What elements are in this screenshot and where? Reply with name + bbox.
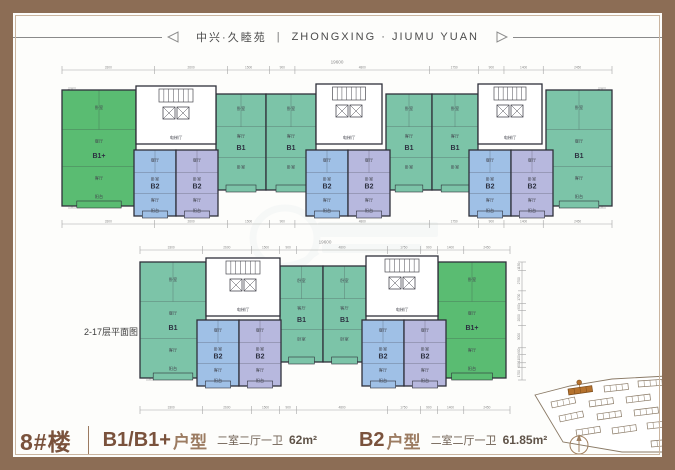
svg-text:600: 600 — [517, 362, 521, 368]
svg-text:卧室: 卧室 — [287, 163, 295, 170]
svg-text:900: 900 — [489, 220, 495, 224]
unit-b1-desc: 二室二厅一卫 — [217, 432, 283, 448]
svg-text:电梯厅: 电梯厅 — [396, 306, 409, 313]
unit-b1+: 卧室餐厅客厅阳台B1+ — [62, 90, 136, 208]
svg-text:4800: 4800 — [359, 220, 366, 224]
svg-text:阳台: 阳台 — [379, 377, 387, 384]
svg-text:900: 900 — [517, 304, 521, 310]
svg-text:1750: 1750 — [400, 246, 407, 250]
left-arrow-icon — [167, 31, 179, 43]
svg-text:3300: 3300 — [105, 66, 112, 70]
stair-elevator-core: 电梯厅 — [206, 258, 280, 316]
site-building — [638, 379, 662, 387]
svg-text:900: 900 — [489, 66, 495, 70]
svg-text:卧室: 卧室 — [256, 346, 264, 353]
svg-text:B2: B2 — [323, 184, 332, 191]
svg-text:B2: B2 — [193, 184, 202, 191]
svg-text:B2: B2 — [421, 354, 430, 361]
svg-text:2450: 2450 — [574, 66, 581, 70]
svg-text:卧室: 卧室 — [237, 163, 245, 170]
svg-text:阳台: 阳台 — [575, 193, 583, 200]
svg-text:餐厅: 餐厅 — [256, 326, 264, 333]
svg-text:1500: 1500 — [245, 220, 252, 224]
svg-text:餐厅: 餐厅 — [528, 156, 536, 163]
svg-text:阳台: 阳台 — [421, 377, 429, 384]
svg-text:B1: B1 — [297, 317, 306, 324]
svg-text:B2: B2 — [379, 354, 388, 361]
svg-text:卧室: 卧室 — [340, 277, 348, 284]
svg-text:客厅: 客厅 — [575, 175, 583, 182]
svg-text:阳台: 阳台 — [468, 365, 476, 372]
svg-text:客厅: 客厅 — [151, 197, 159, 204]
svg-text:卧室: 卧室 — [451, 163, 459, 170]
svg-text:电梯厅: 电梯厅 — [170, 134, 183, 141]
svg-text:1750: 1750 — [451, 66, 458, 70]
svg-text:餐厅: 餐厅 — [95, 138, 103, 145]
svg-text:餐厅: 餐厅 — [214, 326, 222, 333]
svg-text:1150: 1150 — [517, 263, 521, 270]
svg-text:900: 900 — [286, 406, 292, 410]
header-right-line — [513, 37, 675, 38]
svg-text:卧室: 卧室 — [365, 176, 373, 183]
svg-text:卧室: 卧室 — [151, 176, 159, 183]
svg-text:卧室: 卧室 — [405, 105, 413, 112]
svg-text:卧室: 卧室 — [405, 163, 413, 170]
svg-text:1400: 1400 — [520, 220, 527, 224]
project-title: 中兴·久睦苑 | ZHONGXING · JIUMU YUAN — [184, 29, 491, 45]
svg-text:19600: 19600 — [331, 60, 344, 65]
project-title-en: ZHONGXING · JIUMU YUAN — [292, 31, 479, 43]
svg-text:卧室: 卧室 — [297, 277, 305, 284]
svg-text:阳台: 阳台 — [151, 207, 159, 214]
svg-text:卧室: 卧室 — [214, 346, 222, 353]
header-left-line — [0, 37, 162, 38]
svg-text:餐厅: 餐厅 — [193, 156, 201, 163]
stair-elevator-core: 电梯厅 — [316, 84, 382, 144]
title-separator: | — [277, 31, 282, 43]
svg-text:B2: B2 — [214, 354, 223, 361]
svg-text:阳台: 阳台 — [95, 193, 103, 200]
svg-text:客厅: 客厅 — [193, 197, 201, 204]
svg-text:客厅: 客厅 — [237, 133, 245, 140]
svg-text:客厅: 客厅 — [365, 197, 373, 204]
svg-text:餐厅: 餐厅 — [468, 310, 476, 317]
svg-text:900: 900 — [280, 220, 286, 224]
svg-text:阳台: 阳台 — [365, 207, 373, 214]
svg-text:B1: B1 — [340, 317, 349, 324]
svg-text:900: 900 — [426, 406, 432, 410]
svg-text:2600: 2600 — [188, 220, 195, 224]
svg-text:餐厅: 餐厅 — [323, 156, 331, 163]
svg-text:阳台: 阳台 — [193, 207, 201, 214]
unit-b2: 餐厅卧室客厅阳台B2 — [306, 150, 348, 218]
building-number-label: 8#楼 — [20, 423, 72, 457]
svg-text:卧室: 卧室 — [528, 176, 536, 183]
svg-text:卧室: 卧室 — [340, 335, 348, 342]
svg-text:客厅: 客厅 — [468, 347, 476, 354]
unit-b1: 卧室客厅卧室B1 — [216, 94, 266, 192]
svg-text:卧室: 卧室 — [575, 104, 583, 111]
svg-text:卧室: 卧室 — [169, 276, 177, 283]
svg-text:4800: 4800 — [338, 246, 345, 250]
svg-text:阳台: 阳台 — [486, 207, 494, 214]
svg-text:卧室: 卧室 — [486, 176, 494, 183]
svg-text:B1: B1 — [405, 145, 414, 152]
floor-range-note: 2-17层平面图 — [84, 325, 138, 338]
svg-text:2450: 2450 — [483, 246, 490, 250]
svg-text:客厅: 客厅 — [405, 133, 413, 140]
svg-text:B1: B1 — [451, 145, 460, 152]
svg-text:客厅: 客厅 — [297, 305, 305, 312]
svg-text:1400: 1400 — [520, 66, 527, 70]
svg-text:客厅: 客厅 — [379, 367, 387, 374]
svg-text:客厅: 客厅 — [421, 367, 429, 374]
svg-text:餐厅: 餐厅 — [379, 326, 387, 333]
unit-b2-suffix: 户型 — [387, 428, 421, 453]
svg-text:卧室: 卧室 — [95, 104, 103, 111]
svg-text:餐厅: 餐厅 — [421, 326, 429, 333]
svg-text:卧室: 卧室 — [323, 176, 331, 183]
unit-b2: 餐厅卧室客厅阳台B2 — [348, 150, 390, 218]
unit-b2: 餐厅卧室客厅阳台B2 — [197, 320, 239, 388]
floor-plan-drawing: 3300260015009004800175090014002450196003… — [0, 0, 675, 470]
unit-b1: 卧室客厅卧室B1 — [323, 266, 366, 364]
svg-text:卧室: 卧室 — [451, 105, 459, 112]
unit-b1: 卧室餐厅客厅阳台B1 — [140, 262, 206, 380]
svg-text:卧室: 卧室 — [287, 105, 295, 112]
unit-b2: 餐厅卧室客厅阳台B2 — [511, 150, 553, 218]
svg-text:1700: 1700 — [517, 370, 521, 377]
unit-b2: 餐厅卧室客厅阳台B2 — [176, 150, 218, 218]
unit-b2: 餐厅卧室客厅阳台B2 — [362, 320, 404, 388]
floor-plan-page: 中兴·久睦苑 | ZHONGXING · JIUMU YUAN 33002600… — [0, 0, 675, 470]
svg-text:900: 900 — [280, 66, 286, 70]
svg-text:2700: 2700 — [517, 277, 521, 284]
unit-b2: 餐厅卧室客厅阳台B2 — [404, 320, 446, 388]
stair-elevator-core: 电梯厅 — [366, 256, 438, 316]
svg-text:卧室: 卧室 — [379, 346, 387, 353]
svg-text:餐厅: 餐厅 — [486, 156, 494, 163]
svg-text:2600: 2600 — [223, 406, 230, 410]
svg-text:B1: B1 — [169, 325, 178, 332]
svg-text:阳台: 阳台 — [256, 377, 264, 384]
svg-text:2600: 2600 — [223, 246, 230, 250]
svg-text:1700: 1700 — [517, 293, 521, 300]
stair-elevator-core: 电梯厅 — [136, 86, 216, 144]
svg-text:客厅: 客厅 — [486, 197, 494, 204]
svg-text:卧室: 卧室 — [193, 176, 201, 183]
svg-text:1100: 1100 — [517, 355, 521, 362]
site-map — [535, 376, 675, 452]
svg-text:餐厅: 餐厅 — [575, 138, 583, 145]
unit-b1+: 卧室餐厅客厅阳台B1+ — [438, 262, 506, 380]
svg-text:1500: 1500 — [262, 406, 269, 410]
svg-text:客厅: 客厅 — [340, 305, 348, 312]
svg-text:1400: 1400 — [447, 406, 454, 410]
top-floor-plan: 3300260015009004800175090014002450196003… — [61, 60, 612, 229]
svg-text:1500: 1500 — [245, 66, 252, 70]
svg-text:1500: 1500 — [262, 246, 269, 250]
svg-text:3300: 3300 — [105, 220, 112, 224]
svg-text:电梯厅: 电梯厅 — [343, 134, 356, 141]
svg-text:B1+: B1+ — [92, 153, 105, 160]
svg-text:2000: 2000 — [517, 314, 521, 321]
svg-text:B2: B2 — [365, 184, 374, 191]
right-arrow-icon — [496, 31, 508, 43]
svg-text:B2: B2 — [528, 184, 537, 191]
svg-text:客厅: 客厅 — [169, 347, 177, 354]
unit-b2-desc: 二室二厅一卫 — [431, 432, 497, 448]
svg-text:900: 900 — [517, 348, 521, 354]
unit-b2: 餐厅卧室客厅阳台B2 — [469, 150, 511, 218]
svg-text:阳台: 阳台 — [214, 377, 222, 384]
svg-text:1400: 1400 — [447, 246, 454, 250]
svg-text:2450: 2450 — [574, 220, 581, 224]
svg-text:餐厅: 餐厅 — [169, 310, 177, 317]
svg-text:B1: B1 — [575, 153, 584, 160]
svg-text:B1+: B1+ — [465, 325, 478, 332]
unit-b2-name: B2 — [359, 429, 385, 452]
unit-b1-name: B1/B1+ — [103, 429, 171, 452]
svg-text:卧室: 卧室 — [297, 335, 305, 342]
footer-bar: 8#楼 B1/B1+ 户型 二室二厅一卫 62m² B2 户型 二室二厅一卫 6… — [20, 424, 547, 456]
svg-text:19600: 19600 — [319, 240, 332, 245]
svg-text:卧室: 卧室 — [468, 276, 476, 283]
svg-text:3300: 3300 — [168, 406, 175, 410]
svg-text:客厅: 客厅 — [214, 367, 222, 374]
unit-b2: 餐厅卧室客厅阳台B2 — [134, 150, 176, 218]
svg-text:3000: 3000 — [517, 333, 521, 340]
svg-text:B2: B2 — [486, 184, 495, 191]
svg-text:阳台: 阳台 — [323, 207, 331, 214]
svg-text:电梯厅: 电梯厅 — [504, 134, 517, 141]
svg-text:1750: 1750 — [400, 406, 407, 410]
svg-text:客厅: 客厅 — [95, 175, 103, 182]
svg-text:客厅: 客厅 — [256, 367, 264, 374]
svg-text:1750: 1750 — [451, 220, 458, 224]
svg-text:客厅: 客厅 — [528, 197, 536, 204]
svg-text:电梯厅: 电梯厅 — [237, 306, 250, 313]
bottom-floor-plan: 3300260015009004800175090014002450196003… — [139, 240, 526, 415]
svg-text:客厅: 客厅 — [451, 133, 459, 140]
svg-text:客厅: 客厅 — [287, 133, 295, 140]
svg-text:B2: B2 — [151, 184, 160, 191]
unit-b1: 卧室客厅卧室B1 — [386, 94, 432, 192]
svg-text:卧室: 卧室 — [237, 105, 245, 112]
svg-text:B2: B2 — [256, 354, 265, 361]
header: 中兴·久睦苑 | ZHONGXING · JIUMU YUAN — [0, 26, 675, 48]
svg-text:900: 900 — [426, 246, 432, 250]
svg-text:4800: 4800 — [338, 406, 345, 410]
svg-text:阳台: 阳台 — [169, 365, 177, 372]
svg-text:4800: 4800 — [359, 66, 366, 70]
svg-text:餐厅: 餐厅 — [365, 156, 373, 163]
svg-text:3300: 3300 — [168, 246, 175, 250]
unit-b1-area: 62m² — [289, 433, 317, 447]
footer-divider — [88, 426, 89, 454]
unit-b1: 卧室餐厅客厅阳台B1 — [546, 90, 612, 208]
svg-text:卧室: 卧室 — [421, 346, 429, 353]
unit-b1-suffix: 户型 — [173, 428, 207, 453]
svg-text:2450: 2450 — [483, 406, 490, 410]
svg-text:B1: B1 — [287, 145, 296, 152]
unit-b1: 卧室客厅卧室B1 — [280, 266, 323, 364]
stair-elevator-core: 电梯厅 — [478, 84, 542, 144]
svg-text:阳台: 阳台 — [528, 207, 536, 214]
svg-text:2600: 2600 — [188, 66, 195, 70]
project-title-cn: 中兴·久睦苑 — [196, 29, 267, 45]
svg-text:900: 900 — [286, 246, 292, 250]
unit-b2-area: 61.85m² — [503, 433, 548, 447]
svg-text:餐厅: 餐厅 — [151, 156, 159, 163]
svg-text:B1: B1 — [237, 145, 246, 152]
svg-text:客厅: 客厅 — [323, 197, 331, 204]
unit-b2: 餐厅卧室客厅阳台B2 — [239, 320, 281, 388]
